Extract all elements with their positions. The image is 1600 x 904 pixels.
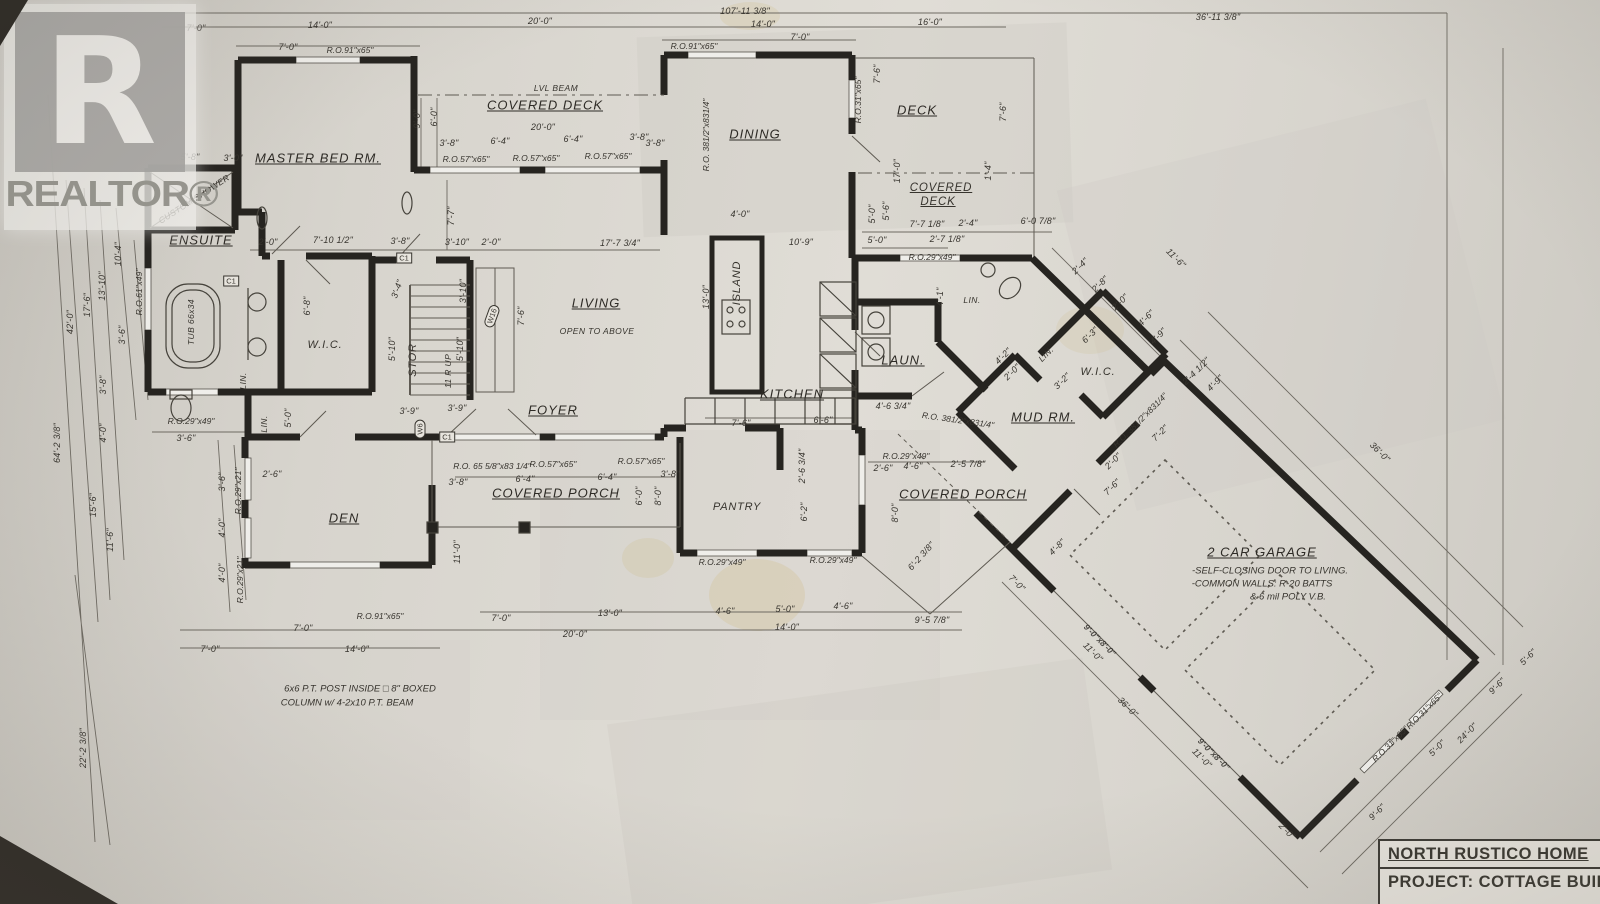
dimension-label: 10'-4" bbox=[113, 242, 123, 266]
dimension-label: 5'-0" bbox=[283, 409, 293, 428]
dimension-label: 3'-8" bbox=[449, 477, 468, 487]
dimension-label: 7'-6" bbox=[732, 418, 751, 428]
room-label: COVERED DECK bbox=[487, 98, 603, 113]
room-label: DECK bbox=[920, 196, 955, 208]
dimension-label: 3'-10" bbox=[445, 237, 469, 247]
window-ro-label: R.O.57"x65" bbox=[530, 459, 577, 469]
dimension-label: 20'-0" bbox=[563, 629, 587, 639]
window-ro-label: R.O. 65 5/8"x83 1/4" bbox=[453, 461, 530, 471]
note-text: -SELF-CLOSING DOOR TO LIVING. bbox=[1192, 566, 1348, 577]
room-label: LIVING bbox=[572, 296, 621, 311]
dimension-label: 3'-8" bbox=[440, 138, 459, 148]
window-ro-label: R.O.31"x65" bbox=[853, 77, 863, 124]
dimension-label: 3'-10" bbox=[458, 279, 468, 303]
dimension-label: 2'-0" bbox=[1277, 821, 1297, 841]
dimension-label: 4'-1" bbox=[935, 288, 945, 307]
window-ro-label: R.O.57"x65" bbox=[443, 154, 490, 164]
dimension-label: 16'-0" bbox=[918, 17, 942, 27]
component-tag: W6 bbox=[415, 419, 426, 438]
room-label: ENSUITE bbox=[169, 233, 232, 248]
dimension-label: 64'-2 3/8" bbox=[52, 423, 62, 463]
window-ro-label: R.O.29"x49" bbox=[810, 555, 857, 565]
room-label: MUD RM. bbox=[1011, 410, 1075, 425]
dimension-label: 7'-6" bbox=[998, 103, 1008, 122]
room-label: DECK bbox=[897, 103, 937, 118]
dimension-label: 3'-9" bbox=[448, 403, 467, 413]
dimension-label: 3'-8" bbox=[661, 469, 680, 479]
dimension-label: 6'-2 3/8" bbox=[906, 540, 937, 573]
dimension-label: 42'-0" bbox=[65, 310, 75, 334]
dimension-label: 4'-6" bbox=[904, 461, 923, 471]
dimension-label: 17'-7 3/4" bbox=[600, 238, 640, 248]
dimension-label: 7'-0" bbox=[1007, 573, 1027, 593]
dimension-label: 5'-0" bbox=[1427, 738, 1447, 758]
dimension-label: 36'-0" bbox=[1116, 695, 1140, 719]
dimension-label: 7'-7" bbox=[446, 207, 456, 226]
dimension-label: 6'-0" bbox=[429, 108, 439, 127]
plan-title: NORTH RUSTICO HOME bbox=[1380, 841, 1600, 869]
room-label: PANTRY bbox=[713, 501, 761, 513]
dimension-label: 36'-11 3/8" bbox=[1196, 12, 1240, 22]
window-ro-label: R.O. 381/2"x831/4" bbox=[1111, 391, 1169, 449]
dimension-label: 7'-6" bbox=[1102, 477, 1122, 497]
dimension-label: 4'-6" bbox=[716, 606, 735, 616]
room-label: KITCHEN bbox=[760, 387, 824, 402]
window-ro-label: R.O. 381/2"x831/4" bbox=[921, 410, 994, 430]
window-ro-label: R.O.57"x65" bbox=[513, 153, 560, 163]
dimension-label: 9'-0" bbox=[412, 110, 422, 129]
title-block: NORTH RUSTICO HOME PROJECT: COTTAGE BUIL… bbox=[1378, 839, 1600, 904]
dimension-label: 14'-0" bbox=[308, 20, 332, 30]
plan-project-label: PROJECT: COTTAGE BUILDE bbox=[1380, 869, 1600, 895]
dimension-label: 13'-10" bbox=[97, 271, 107, 300]
window-ro-label: R.O.91"x65" bbox=[671, 41, 718, 51]
dimension-label: 10'-9" bbox=[789, 237, 813, 247]
dimension-label: 7'-7 1/8" bbox=[910, 219, 945, 229]
dimension-label: 15'-6" bbox=[88, 493, 98, 517]
dimension-label: 3'-6" bbox=[117, 326, 127, 345]
dimension-label: 9'-6" bbox=[1487, 676, 1507, 696]
dimension-label: 6'-4" bbox=[491, 136, 510, 146]
dimension-label: 3'-8" bbox=[391, 236, 410, 246]
room-label: 2 CAR GARAGE bbox=[1207, 545, 1317, 560]
dimension-label: 3'-8" bbox=[646, 138, 665, 148]
dimension-label: 4'-0" bbox=[217, 564, 227, 583]
dimension-label: 7'-6" bbox=[872, 65, 882, 84]
window-ro-label: R.O.29"x49" bbox=[909, 252, 956, 262]
room-label: COVERED bbox=[910, 182, 972, 194]
component-tag: C1 bbox=[223, 276, 239, 287]
room-sublabel: TUB 66x34 bbox=[186, 299, 196, 345]
window-ro-label: R.O.29"x49" bbox=[168, 416, 215, 426]
dimension-label: 2'-5 7/8" bbox=[951, 459, 986, 469]
dimension-label: 2'-4" bbox=[1070, 256, 1090, 276]
dimension-label: 3'-0" bbox=[224, 153, 243, 163]
dimension-label: 24'-0" bbox=[1455, 721, 1479, 745]
dimension-label: 3'-6" bbox=[177, 433, 196, 443]
realtor-brand-text: REALTOR® bbox=[4, 173, 219, 215]
annotation-layer: 107'-11 3/8"7'-0"14'-0"20'-0"14'-0"16'-0… bbox=[0, 0, 1600, 904]
dimension-label: 6'-0" bbox=[634, 487, 644, 506]
dimension-label: 6'-3" bbox=[1080, 325, 1100, 345]
realtor-logo-icon: R bbox=[15, 12, 185, 172]
dimension-label: 3'-8" bbox=[98, 376, 108, 395]
window-ro-label: R.O.29"x21" bbox=[235, 557, 245, 604]
dimension-label: 4'-6" bbox=[1136, 308, 1156, 328]
dimension-label: 22'-2 3/8" bbox=[78, 728, 88, 768]
dimension-label: 4'-2" bbox=[993, 346, 1013, 366]
dimension-label: 5'-6" bbox=[1518, 647, 1538, 667]
dimension-label: 7'-6" bbox=[516, 307, 526, 326]
room-sublabel: LVL BEAM bbox=[534, 83, 578, 93]
window-ro-label: R.O.29"x21" bbox=[233, 468, 243, 515]
dimension-label: 3'-4" bbox=[389, 278, 405, 299]
dimension-label: 3'-9" bbox=[400, 406, 419, 416]
dimension-label: 2'-0" bbox=[1002, 362, 1022, 382]
dimension-label: 2'-0" bbox=[259, 237, 278, 247]
note-text: COLUMN w/ 4-2x10 P.T. BEAM bbox=[281, 698, 414, 709]
dimension-label: 1'-4" bbox=[983, 162, 993, 181]
window-ro-label: R.O.31"x65" bbox=[1370, 724, 1410, 764]
dimension-label: 11'-0" bbox=[452, 540, 462, 563]
dimension-label: 6'-6" bbox=[814, 415, 833, 425]
dimension-label: 5'-10" bbox=[455, 337, 465, 361]
dimension-label: 2'-4" bbox=[959, 218, 978, 228]
room-label: W.I.C. bbox=[308, 339, 343, 351]
dimension-label: 6'-8" bbox=[302, 297, 312, 316]
window-ro-label: R.O.29"x49" bbox=[883, 451, 930, 461]
note-text: 6x6 P.T. POST INSIDE □ 8" BOXED bbox=[284, 684, 436, 695]
dimension-label: 14'-0" bbox=[751, 19, 775, 29]
room-label: DEN bbox=[329, 511, 359, 526]
room-label: W.I.C. bbox=[1081, 366, 1116, 378]
dimension-label: 3'-6" bbox=[217, 473, 227, 492]
dimension-label: 13'-0" bbox=[701, 285, 711, 309]
dimension-label: 13'-0" bbox=[598, 608, 622, 618]
room-label: COVERED PORCH bbox=[899, 487, 1027, 502]
dimension-label: 5'-0" bbox=[776, 604, 795, 614]
room-label: ISLAND bbox=[731, 261, 743, 306]
room-label: MASTER BED RM. bbox=[255, 151, 381, 166]
dimension-label: 4'-9" bbox=[1205, 373, 1225, 393]
dimension-label: 7'-0" bbox=[791, 32, 810, 42]
room-sublabel: OPEN TO ABOVE bbox=[560, 326, 635, 336]
room-label: LAUN. bbox=[881, 353, 924, 368]
dimension-label: 6'-2" bbox=[799, 503, 809, 522]
window-ro-label: R.O.29"x49" bbox=[699, 557, 746, 567]
dimension-label: 4'-6" bbox=[834, 601, 853, 611]
room-sublabel: LIN. bbox=[1036, 344, 1055, 363]
dimension-label: 17'-6" bbox=[82, 293, 92, 317]
dimension-label: 9'-5 7/8" bbox=[915, 615, 950, 625]
dimension-label: 4'-0" bbox=[731, 209, 750, 219]
dimension-label: 2'-7 1/8" bbox=[930, 234, 965, 244]
dimension-label: 7'-0" bbox=[201, 644, 220, 654]
window-ro-label: R.O.91"x65" bbox=[357, 611, 404, 621]
room-sublabel: LIN. bbox=[259, 415, 269, 432]
dimension-label: 4'-0" bbox=[217, 519, 227, 538]
dimension-label: 5'-0" bbox=[868, 235, 887, 245]
dimension-label: 6'-4" bbox=[516, 474, 535, 484]
dimension-label: 2'-6" bbox=[874, 463, 893, 473]
floor-plan-photo: 107'-11 3/8"7'-0"14'-0"20'-0"14'-0"16'-0… bbox=[0, 0, 1600, 904]
dimension-label: 7'-0" bbox=[492, 613, 511, 623]
room-label: STOR bbox=[407, 343, 419, 377]
dimension-label: 14'-0" bbox=[775, 622, 799, 632]
window-ro-label: R.O.57"x65" bbox=[585, 151, 632, 161]
dimension-label: 14'-0" bbox=[345, 644, 369, 654]
dimension-label: 7'-0" bbox=[294, 623, 313, 633]
dimension-label: 107'-11 3/8" bbox=[720, 6, 770, 16]
dimension-label: 2'-0" bbox=[1110, 292, 1130, 312]
room-sublabel: 11 R UP bbox=[443, 354, 453, 388]
realtor-logo-letter: R bbox=[43, 18, 157, 166]
component-tag: C1 bbox=[396, 253, 412, 264]
note-text: & 6 mil POLY V.B. bbox=[1250, 592, 1326, 603]
dimension-label: 11'-6" bbox=[1164, 246, 1188, 270]
dimension-label: 5'-6" bbox=[881, 202, 891, 221]
dimension-label: 5'-10" bbox=[387, 337, 397, 361]
room-label: COVERED PORCH bbox=[492, 486, 620, 501]
room-sublabel: LIN. bbox=[238, 372, 248, 389]
dimension-label: 20'-0" bbox=[531, 122, 555, 132]
dimension-label: 6'-0 7/8" bbox=[1021, 216, 1056, 226]
dimension-label: 11'-6" bbox=[105, 528, 115, 551]
room-sublabel: LIN. bbox=[963, 295, 980, 305]
dimension-label: 3'-2" bbox=[1052, 371, 1072, 391]
dimension-label: 2'-6 3/4" bbox=[797, 449, 807, 484]
window-ro-label: R.O. 381/2"x831/4" bbox=[701, 99, 711, 172]
note-text: -COMMON WALLS: R-20 BATTS bbox=[1192, 579, 1333, 590]
dimension-label: 36'-0" bbox=[1368, 440, 1392, 464]
dimension-label: 17'-0" bbox=[892, 159, 902, 183]
component-tag: W16 bbox=[483, 303, 501, 329]
window-ro-label: R.O.61"x49" bbox=[134, 269, 144, 316]
window-ro-label: R.O.57"x65" bbox=[618, 456, 665, 466]
dimension-label: 7'-0" bbox=[279, 42, 298, 52]
window-ro-label: R.O.91"x65" bbox=[327, 45, 374, 55]
room-label: DINING bbox=[729, 127, 781, 142]
dimension-label: 20'-0" bbox=[528, 16, 552, 26]
dimension-label: 7'-2" bbox=[1150, 423, 1170, 443]
dimension-label: 4'-8" bbox=[1047, 537, 1067, 557]
room-label: FOYER bbox=[528, 403, 578, 418]
dimension-label: 4'-6 3/4" bbox=[876, 401, 911, 411]
dimension-label: 4'-9" bbox=[1148, 326, 1168, 346]
dimension-label: 6'-4" bbox=[564, 134, 583, 144]
dimension-label: 2'-6" bbox=[263, 469, 282, 479]
dimension-label: 7'-10 1/2" bbox=[313, 235, 353, 245]
window-ro-label: R.O.31"x65" bbox=[1404, 691, 1444, 731]
component-tag: C1 bbox=[439, 432, 455, 443]
dimension-label: 5'-0" bbox=[867, 205, 877, 224]
dimension-label: 4'-0" bbox=[98, 424, 108, 443]
dimension-label: 8'-0" bbox=[890, 504, 900, 523]
dimension-label: 2'-8" bbox=[1090, 274, 1110, 294]
dimension-label: 2'-0" bbox=[1103, 451, 1123, 471]
realtor-watermark: R REALTOR® bbox=[4, 4, 196, 230]
dimension-label: 8'-0" bbox=[653, 487, 663, 506]
dimension-label: 6'-4" bbox=[598, 472, 617, 482]
dimension-label: 9'-6" bbox=[1367, 802, 1387, 822]
dimension-label: 2'-0" bbox=[482, 237, 501, 247]
